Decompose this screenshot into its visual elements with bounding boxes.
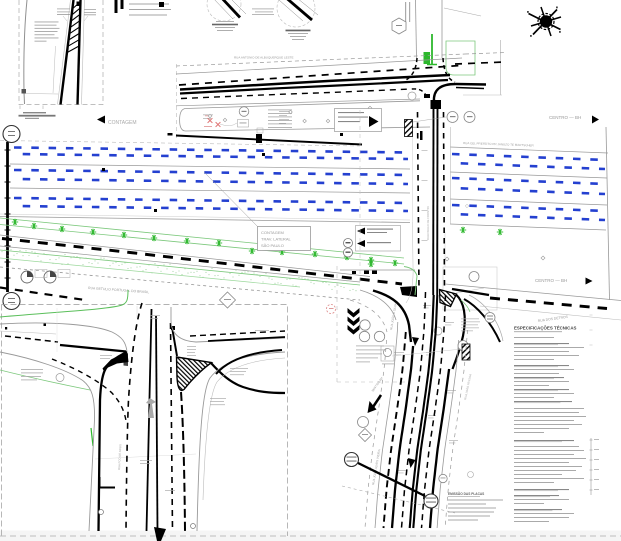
svg-text:RUA PAULO DE FRONTIN: RUA PAULO DE FRONTIN	[426, 206, 430, 240]
svg-text:SÃO PAULO: SÃO PAULO	[261, 243, 284, 248]
svg-text:CENTRO — BH: CENTRO — BH	[535, 278, 567, 283]
svg-text:EMISSÃO DAS PLACAS: EMISSÃO DAS PLACAS	[448, 491, 484, 496]
svg-text:ESPECIFICAÇÕES TÉCNICAS: ESPECIFICAÇÕES TÉCNICAS	[514, 326, 577, 331]
svg-text:CONTAGEM: CONTAGEM	[108, 120, 137, 126]
svg-text:CENTRO — BH: CENTRO — BH	[549, 115, 581, 120]
svg-text:CONTAGEM: CONTAGEM	[261, 230, 284, 235]
svg-text:TRAV. LATERAL: TRAV. LATERAL	[261, 237, 291, 242]
svg-text:RUA ANTONIO DE ALBUQUERQUE LES: RUA ANTONIO DE ALBUQUERQUE LESTE	[234, 56, 293, 60]
